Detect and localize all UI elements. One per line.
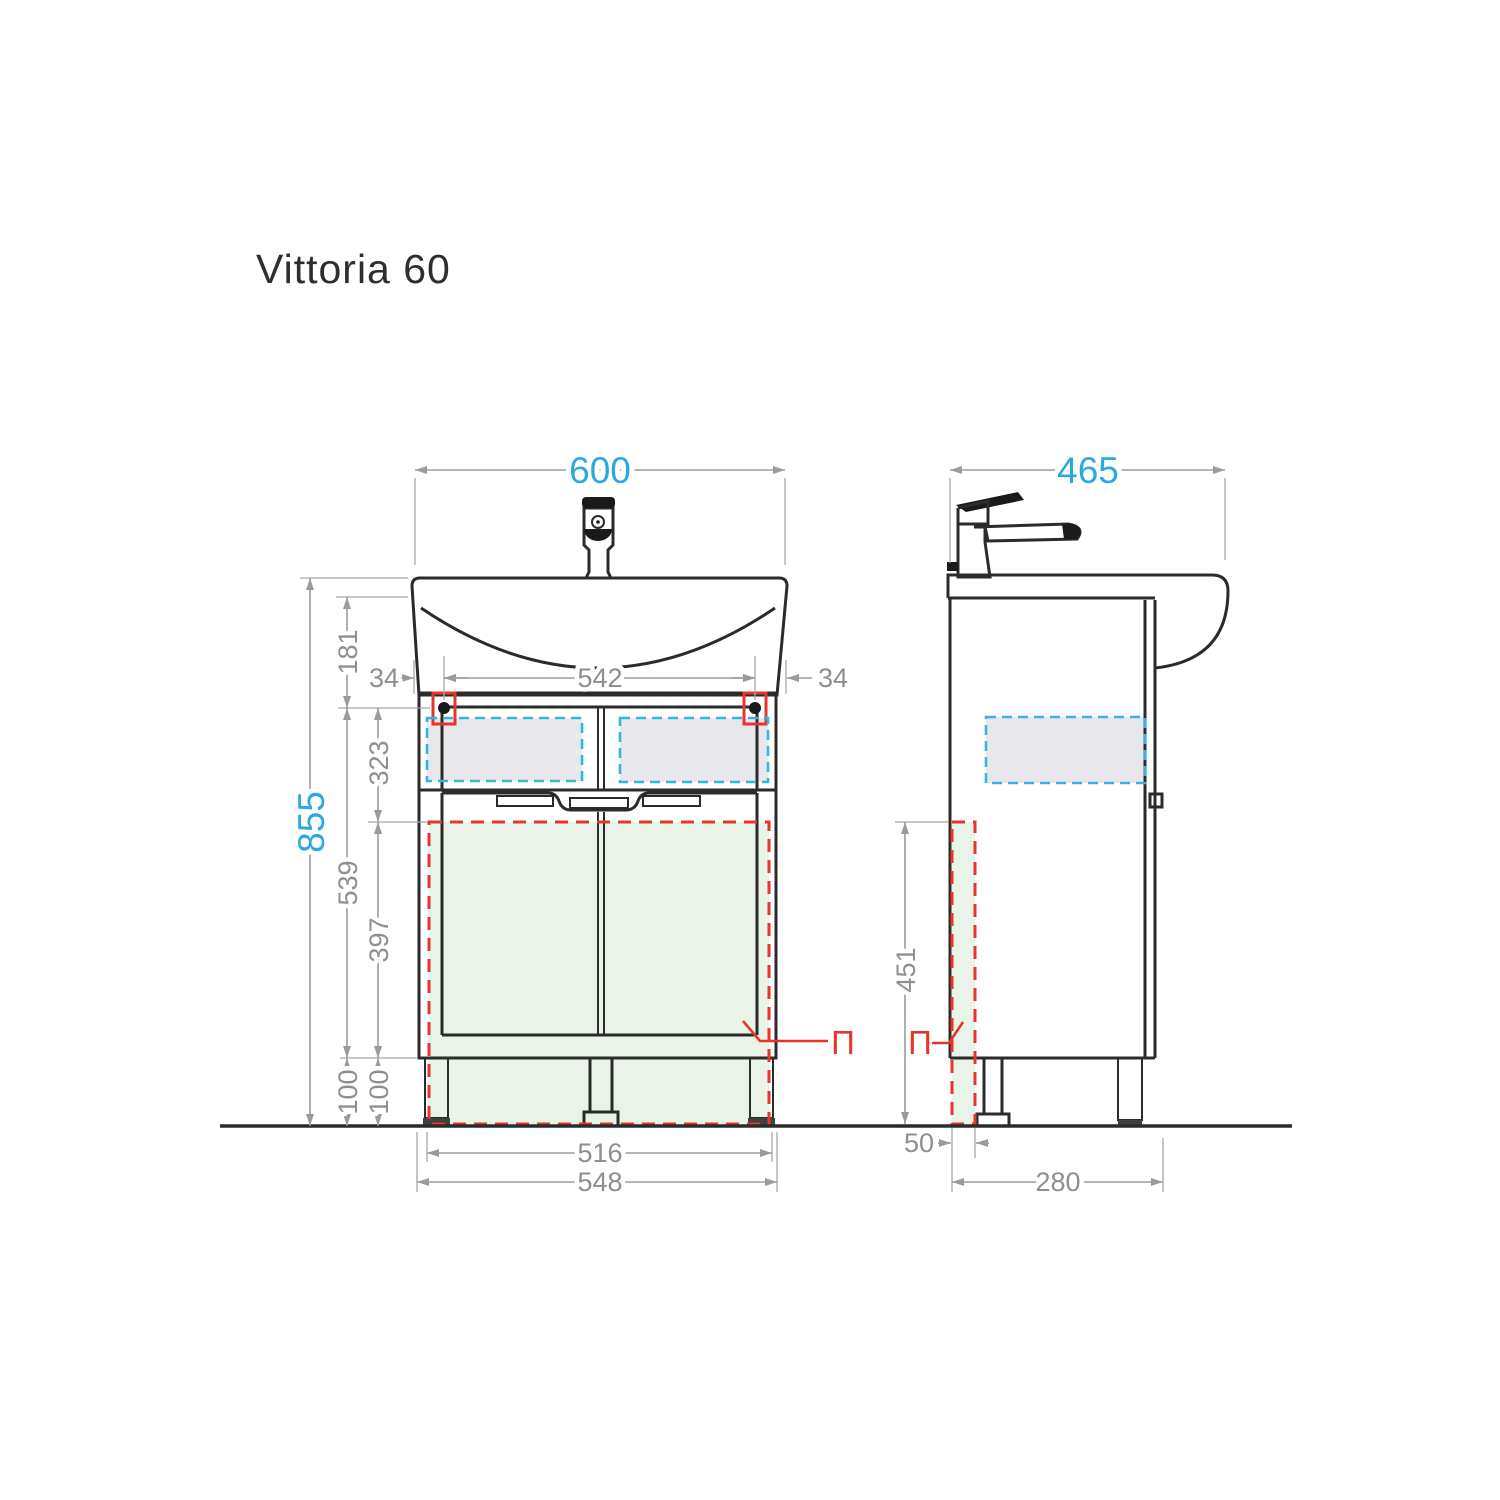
front-drawer-zone-left	[427, 718, 582, 781]
vanity-technical-drawing: П	[0, 0, 1500, 1500]
dim-front-height: 855	[291, 791, 332, 853]
dim-hinge-to-base: 539	[333, 860, 363, 905]
faucet-side	[947, 492, 1081, 577]
drawing-title: Vittoria 60	[256, 246, 451, 293]
dim-leg-height-1: 100	[333, 1069, 363, 1114]
basin-bowl-curve	[421, 608, 775, 668]
side-leg-rear	[1118, 1058, 1142, 1120]
front-view: П	[412, 497, 855, 1126]
legs-side	[977, 1058, 1142, 1126]
dim-side-depth: 465	[1057, 450, 1119, 491]
side-section-label: П	[908, 1024, 932, 1061]
handle-bar-center	[570, 798, 628, 808]
side-leg-front-foot	[977, 1114, 1009, 1126]
front-drawer-zone-right	[620, 718, 768, 782]
washbasin-side	[948, 575, 1228, 668]
faucet-front	[582, 497, 615, 578]
hinge-dot-left	[438, 702, 450, 714]
dim-side-panel-height: 451	[891, 947, 921, 992]
dim-offset-left: 34	[369, 663, 399, 693]
dim-offset-right: 34	[818, 663, 848, 693]
dim-side-leg-offset: 280	[1035, 1167, 1080, 1197]
dim-front-width: 600	[569, 450, 631, 491]
dim-hinge-span: 542	[577, 663, 622, 693]
cabinet-side	[950, 598, 1162, 1058]
dim-leg-height-2: 100	[364, 1069, 394, 1114]
dim-hinge-to-panel: 323	[364, 740, 394, 785]
dim-side-panel-depth: 50	[904, 1128, 934, 1158]
dim-feet-inner: 516	[577, 1138, 622, 1168]
dim-top-to-hinge: 181	[333, 629, 363, 674]
side-panel-highlight	[952, 822, 975, 1124]
side-view: П	[908, 492, 1228, 1126]
front-section-label: П	[831, 1024, 855, 1061]
hinge-dot-right	[749, 702, 761, 714]
handle-bar-right	[643, 796, 700, 806]
dim-feet-outer: 548	[577, 1167, 622, 1197]
handle-bar-left	[497, 796, 553, 806]
side-drawer-zone	[986, 717, 1145, 783]
dim-panel-height: 397	[364, 917, 394, 962]
drawing-canvas: Vittoria 60	[0, 0, 1500, 1500]
